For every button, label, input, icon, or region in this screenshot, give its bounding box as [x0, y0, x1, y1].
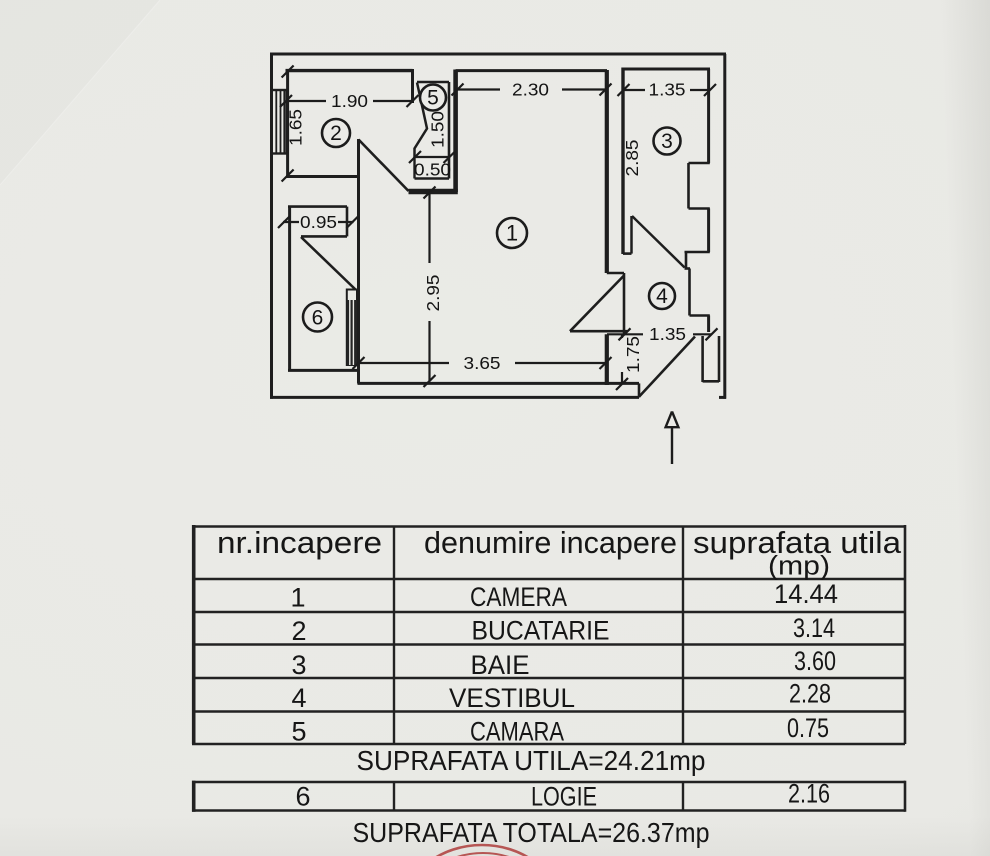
svg-text:2: 2	[291, 616, 306, 646]
svg-text:SUPRAFATA TOTALA=26.37mp: SUPRAFATA TOTALA=26.37mp	[353, 817, 710, 848]
svg-text:1.35: 1.35	[649, 79, 686, 99]
svg-text:1.75: 1.75	[623, 336, 643, 373]
svg-text:1: 1	[506, 221, 518, 246]
svg-text:2.30: 2.30	[512, 79, 549, 99]
svg-text:3: 3	[291, 650, 306, 680]
svg-text:0.50: 0.50	[414, 160, 451, 180]
svg-text:1.90: 1.90	[331, 91, 368, 111]
svg-text:14.44: 14.44	[774, 579, 838, 609]
svg-text:1: 1	[290, 583, 305, 613]
svg-text:1.50: 1.50	[428, 111, 448, 148]
svg-text:3.65: 3.65	[464, 353, 501, 373]
svg-text:nr.incapere: nr.incapere	[217, 525, 382, 560]
svg-text:2.28: 2.28	[789, 679, 831, 709]
svg-text:0.95: 0.95	[300, 212, 337, 232]
svg-text:6: 6	[312, 307, 324, 330]
svg-text:LOGIE: LOGIE	[531, 782, 597, 812]
svg-text:VESTIBUL: VESTIBUL	[449, 683, 575, 713]
svg-text:6: 6	[295, 782, 310, 812]
svg-text:denumire incapere: denumire incapere	[424, 525, 677, 560]
svg-text:2: 2	[330, 122, 342, 145]
svg-text:2.95: 2.95	[423, 275, 443, 312]
svg-text:2.85: 2.85	[622, 140, 642, 177]
svg-text:4: 4	[291, 683, 306, 713]
svg-text:4: 4	[656, 285, 668, 308]
svg-text:5: 5	[427, 87, 439, 110]
svg-text:3.14: 3.14	[793, 613, 835, 643]
svg-text:2.16: 2.16	[788, 779, 830, 809]
svg-text:3: 3	[661, 130, 673, 153]
svg-text:0.75: 0.75	[787, 713, 829, 743]
svg-text:SUPRAFATA UTILA=24.21mp: SUPRAFATA UTILA=24.21mp	[357, 745, 706, 776]
svg-text:BAIE: BAIE	[471, 650, 530, 680]
svg-text:CAMERA: CAMERA	[470, 582, 567, 612]
svg-text:CAMARA: CAMARA	[470, 717, 564, 747]
svg-text:(mp): (mp)	[768, 551, 830, 581]
svg-text:3.60: 3.60	[794, 646, 836, 676]
svg-text:1.35: 1.35	[649, 324, 686, 344]
svg-text:BUCATARIE: BUCATARIE	[472, 616, 610, 646]
svg-text:5: 5	[291, 717, 306, 747]
svg-text:1.65: 1.65	[286, 109, 306, 146]
